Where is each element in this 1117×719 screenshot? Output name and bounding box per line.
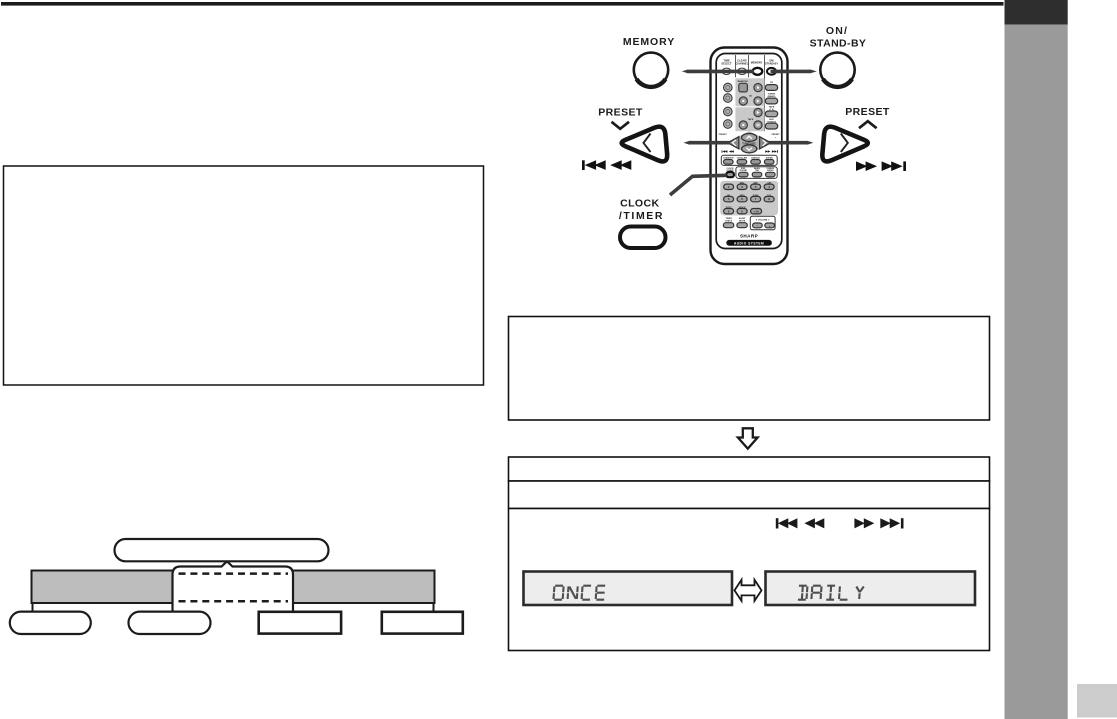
svg-text:PRESET: PRESET	[598, 107, 643, 119]
svg-text:CHANNEL: CHANNEL	[736, 62, 749, 66]
svg-text:PRESET: PRESET	[772, 134, 781, 136]
svg-text:STAND-BY: STAND-BY	[810, 37, 867, 49]
svg-text:+: +	[769, 224, 771, 228]
svg-text:−: −	[757, 224, 759, 228]
svg-text:ON/: ON/	[826, 25, 848, 37]
svg-text:MEMORY: MEMORY	[751, 61, 763, 65]
svg-text:STAND-BY: STAND-BY	[765, 62, 778, 66]
svg-text:PRESET: PRESET	[719, 134, 728, 136]
svg-text:AUDIO SYSTEM: AUDIO SYSTEM	[734, 241, 764, 245]
svg-text:◄ VOLUME ►: ◄ VOLUME ►	[755, 218, 770, 221]
svg-text:SHARP: SHARP	[740, 233, 758, 238]
svg-text:+10: +10	[754, 209, 759, 213]
svg-text:MEMORY: MEMORY	[623, 36, 675, 48]
svg-text:RANDOM: RANDOM	[738, 80, 748, 83]
svg-text:SELECT: SELECT	[721, 62, 732, 66]
svg-text:PRESET: PRESET	[845, 106, 890, 118]
svg-text:CD: CD	[770, 82, 774, 84]
svg-text:CD: CD	[749, 96, 753, 98]
svg-text:CLOCK: CLOCK	[620, 198, 659, 210]
svg-text:TAPE: TAPE	[748, 118, 754, 121]
svg-text:TUNE/DISC: TUNE/DISC	[742, 142, 756, 146]
svg-text:DISPLAY: DISPLAY	[751, 156, 760, 159]
svg-text:/TIMER: /TIMER	[619, 210, 664, 222]
svg-text:CASSETTE: CASSETTE	[723, 156, 734, 159]
